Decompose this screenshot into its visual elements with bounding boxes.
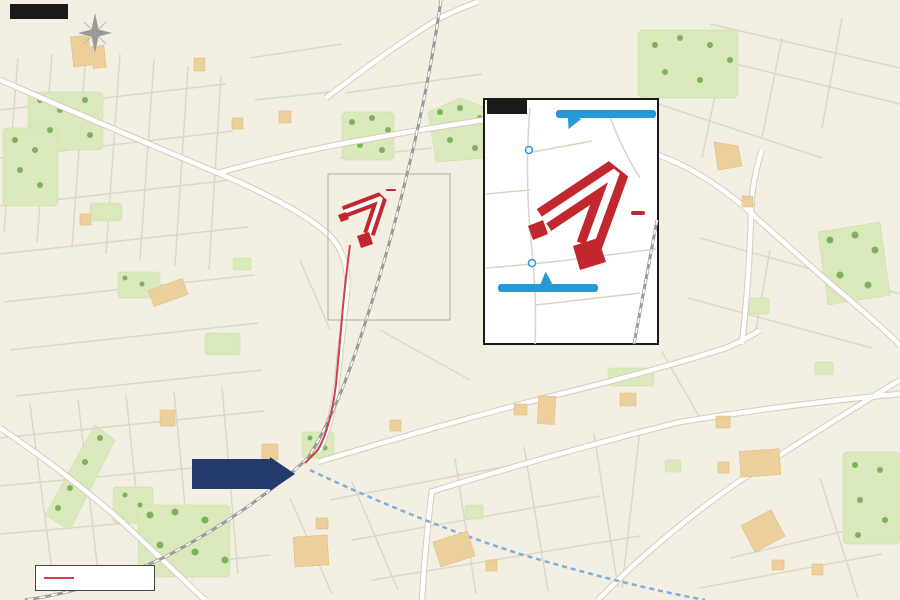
site-label-main xyxy=(386,189,396,191)
inset-title xyxy=(487,100,527,114)
site-guide-map xyxy=(0,0,900,600)
bus-stop-balloon-wakamatsu xyxy=(556,110,656,118)
balloon-tail xyxy=(537,271,552,286)
station-arrow-label xyxy=(192,459,270,489)
bus-stop-marker xyxy=(526,147,533,154)
legend-box xyxy=(35,565,155,591)
bus-stop-marker xyxy=(529,260,536,267)
walk-route-line-sample xyxy=(44,577,74,579)
map-base-graphics xyxy=(0,0,900,600)
bus-stop-balloon-nishitsuga xyxy=(498,284,598,292)
map-title xyxy=(10,4,68,19)
site-label-inset xyxy=(631,211,645,215)
inset-map xyxy=(484,99,658,344)
